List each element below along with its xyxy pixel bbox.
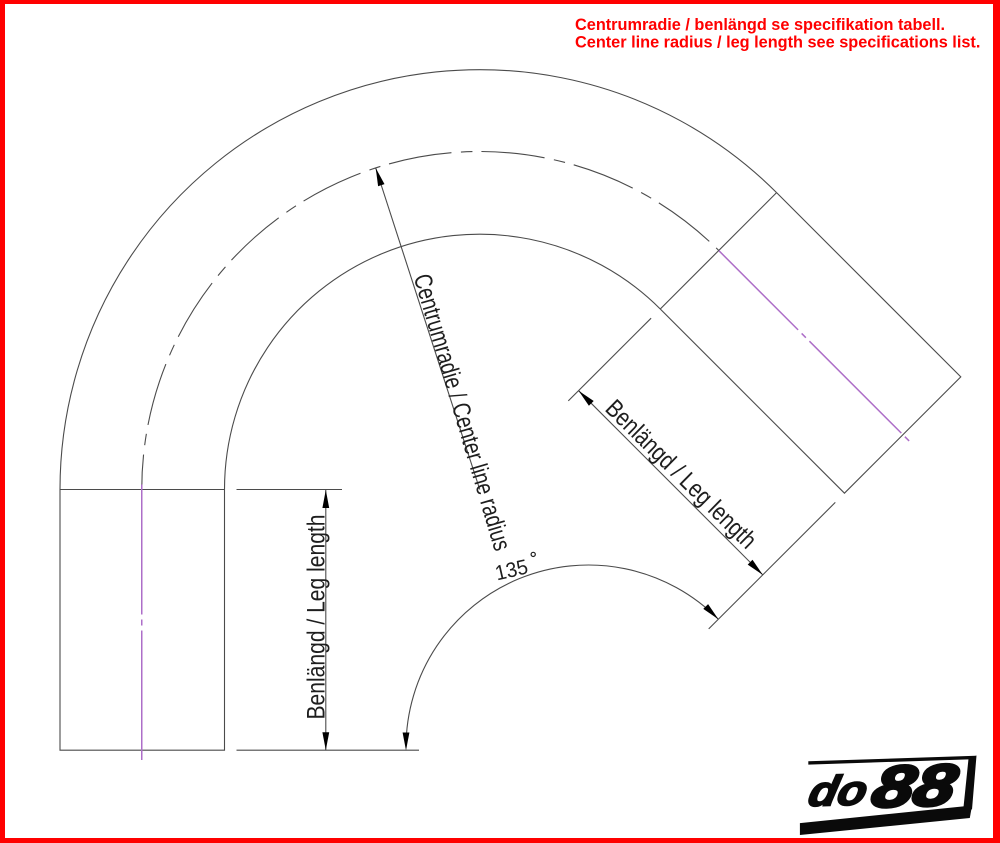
svg-text:88: 88 bbox=[867, 753, 964, 820]
svg-text:Centrumradie / benlängd se spe: Centrumradie / benlängd se specifikation… bbox=[575, 16, 945, 34]
svg-text:Benlängd / Leg length: Benlängd / Leg length bbox=[303, 515, 331, 720]
svg-text:Benlängd / Leg length: Benlängd / Leg length bbox=[600, 394, 762, 554]
svg-text:135: 135 bbox=[493, 556, 530, 586]
svg-text:Centrumradie / Center line rad: Centrumradie / Center line radius bbox=[408, 271, 516, 554]
svg-text:do: do bbox=[804, 766, 872, 815]
svg-text:Center line radius / leg lengt: Center line radius / leg length see spec… bbox=[575, 33, 980, 51]
